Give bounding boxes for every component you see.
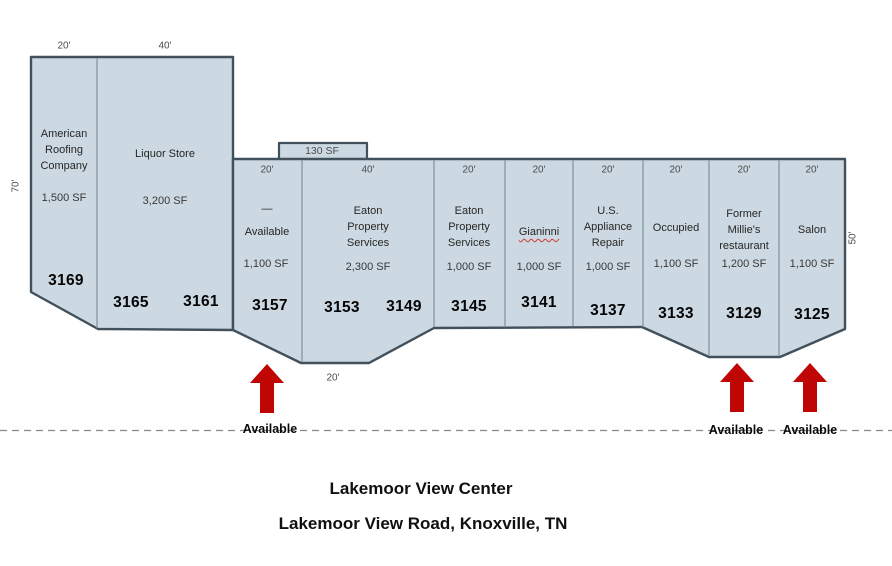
unit-3141-sf: 1,000 SF	[517, 261, 562, 273]
dim-label-left-depth: 70'	[11, 179, 22, 192]
unit-3129-sf: 1,200 SF	[722, 258, 767, 270]
unit-number-3161: 3161	[183, 293, 219, 311]
unit-3141-name: Gianinni	[519, 224, 559, 240]
dim-label: 20'	[737, 165, 750, 176]
available-label: Available	[709, 423, 763, 437]
unit-3133-sf: 1,100 SF	[654, 258, 699, 270]
dim-label-right-depth: 50'	[848, 231, 859, 244]
unit-number-3129: 3129	[726, 305, 762, 323]
unit-number-3169: 3169	[48, 272, 84, 290]
unit-number-3133: 3133	[658, 305, 694, 323]
unit-3153-name: Eaton Property Services	[347, 203, 389, 251]
center-address: Lakemoor View Road, Knoxville, TN	[279, 514, 568, 534]
dim-label: 20'	[57, 41, 70, 52]
dim-label: 20'	[532, 165, 545, 176]
dim-label: 20'	[805, 165, 818, 176]
unit-number-3157: 3157	[252, 297, 288, 315]
available-arrow-icon	[793, 363, 827, 412]
unit-number-3153: 3153	[324, 299, 360, 317]
unit-number-3165: 3165	[113, 294, 149, 312]
available-arrow-icon	[250, 364, 284, 413]
available-label: Available	[783, 423, 837, 437]
unit-3125-name: Salon	[798, 222, 826, 238]
unit-liquor-name: Liquor Store	[135, 146, 195, 162]
available-label: Available	[243, 422, 297, 436]
unit-3125-sf: 1,100 SF	[790, 258, 835, 270]
dim-label: 20'	[669, 165, 682, 176]
dim-label: 20'	[260, 165, 273, 176]
site-plan: 20' 40' 20' 40' 20' 20' 20' 20' 20' 20' …	[0, 0, 892, 566]
unit-3169-name: American Roofing Company	[40, 126, 87, 174]
unit-3137-name: U.S. Appliance Repair	[584, 203, 632, 251]
unit-3129-name: Former Millie's restaurant	[719, 206, 769, 254]
unit-3157-name: — Available	[245, 198, 289, 244]
dim-label: 40'	[158, 41, 171, 52]
unit-3137-sf: 1,000 SF	[586, 261, 631, 273]
unit-3145-name: Eaton Property Services	[448, 203, 490, 251]
unit-number-3137: 3137	[590, 302, 626, 320]
unit-3157-sf: 1,100 SF	[244, 258, 289, 270]
unit-3169-sf: 1,500 SF	[42, 192, 87, 204]
center-title: Lakemoor View Center	[330, 479, 513, 499]
available-arrow-icon	[720, 363, 754, 412]
unit-number-3125: 3125	[794, 306, 830, 324]
unit-number-3149: 3149	[386, 298, 422, 316]
dim-label: 40'	[361, 165, 374, 176]
unit-3153-sf: 2,300 SF	[346, 261, 391, 273]
dim-label: 20'	[462, 165, 475, 176]
unit-liquor-sf: 3,200 SF	[143, 195, 188, 207]
dim-label: 20'	[601, 165, 614, 176]
unit-3145-sf: 1,000 SF	[447, 261, 492, 273]
unit-number-3141: 3141	[521, 294, 557, 312]
dim-label-bottom-frontage: 20'	[326, 373, 339, 384]
mezzanine-sf-label: 130 SF	[305, 145, 339, 157]
unit-3133-name: Occupied	[653, 220, 699, 236]
unit-number-3145: 3145	[451, 298, 487, 316]
